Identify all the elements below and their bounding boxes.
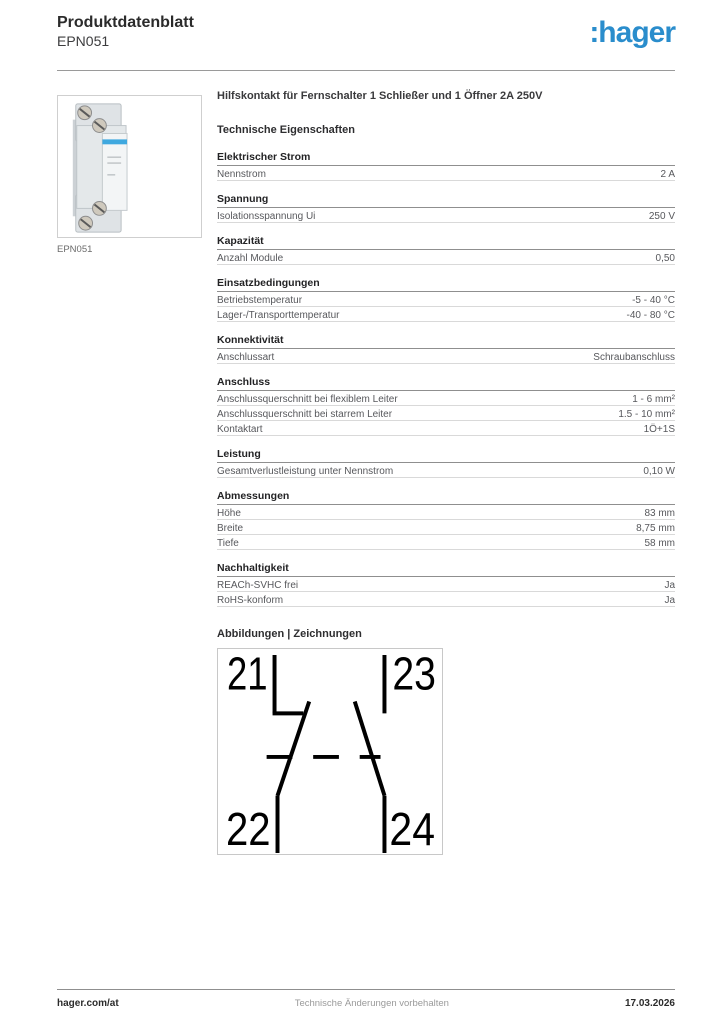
- spec-row-label: Nennstrom: [217, 169, 266, 180]
- product-photo-frame: [57, 95, 202, 238]
- spec-section: EinsatzbedingungenBetriebstemperatur-5 -…: [217, 277, 675, 322]
- spec-row-label: Lager-/Transporttemperatur: [217, 310, 339, 321]
- product-photo: [58, 96, 201, 237]
- spec-row-label: Anschlussquerschnitt bei flexiblem Leite…: [217, 394, 398, 405]
- spec-row-label: Gesamtverlustleistung unter Nennstrom: [217, 466, 393, 477]
- product-image-column: EPN051: [57, 95, 202, 255]
- spec-row-label: Anzahl Module: [217, 253, 283, 264]
- spec-section-title: Anschluss: [217, 376, 675, 391]
- spec-row-label: Betriebstemperatur: [217, 295, 302, 306]
- spec-row-value: 0,10 W: [643, 466, 675, 477]
- spec-section-title: Elektrischer Strom: [217, 151, 675, 166]
- spec-sections: Elektrischer StromNennstrom2 ASpannungIs…: [217, 151, 675, 607]
- spec-row-label: Isolationsspannung Ui: [217, 211, 315, 222]
- footer-date: 17.03.2026: [625, 998, 675, 1009]
- blue-stripe: [102, 139, 127, 144]
- header-divider: [57, 70, 675, 71]
- header-titles: Produktdatenblatt EPN051: [57, 14, 194, 51]
- spec-row: Anzahl Module0,50: [217, 250, 675, 265]
- page-footer: hager.com/at Technische Änderungen vorbe…: [57, 989, 675, 1009]
- tech-properties-heading: Technische Eigenschaften: [217, 124, 675, 136]
- terminal-label-24: 24: [389, 803, 435, 854]
- spec-row-label: Anschlussart: [217, 352, 274, 363]
- spec-row-value: 1Ö+1S: [644, 424, 675, 435]
- footer-website-link[interactable]: hager.com/at: [57, 998, 119, 1009]
- footer-notice: Technische Änderungen vorbehalten: [295, 998, 449, 1009]
- spec-row-value: 58 mm: [644, 538, 675, 549]
- spec-row-label: Höhe: [217, 508, 241, 519]
- spec-section-title: Leistung: [217, 448, 675, 463]
- wiring-diagram-frame: 21 23 22 24: [217, 648, 443, 855]
- spec-row-value: 2 A: [661, 169, 675, 180]
- spec-row-label: Breite: [217, 523, 243, 534]
- figures-heading: Abbildungen | Zeichnungen: [217, 628, 675, 640]
- spec-row-label: Kontaktart: [217, 424, 263, 435]
- contact-schematic: 21 23 22 24: [218, 649, 442, 854]
- spec-section: KonnektivitätAnschlussartSchraubanschlus…: [217, 334, 675, 364]
- spec-section-title: Abmessungen: [217, 490, 675, 505]
- spec-row-value: 1.5 - 10 mm²: [618, 409, 675, 420]
- spec-row: Anschlussquerschnitt bei starrem Leiter1…: [217, 406, 675, 421]
- terminal-label-22: 22: [226, 803, 271, 854]
- spec-section-title: Spannung: [217, 193, 675, 208]
- spec-row: Isolationsspannung Ui250 V: [217, 208, 675, 223]
- spec-row: REACh-SVHC freiJa: [217, 577, 675, 592]
- spec-row-value: 83 mm: [644, 508, 675, 519]
- spec-row: Lager-/Transporttemperatur-40 - 80 °C: [217, 307, 675, 322]
- terminal-label-23: 23: [392, 649, 436, 700]
- hager-logo: :hager: [589, 18, 675, 48]
- spec-row-label: Tiefe: [217, 538, 239, 549]
- spec-row-value: -5 - 40 °C: [632, 295, 675, 306]
- spec-row: Höhe83 mm: [217, 505, 675, 520]
- spec-row-value: -40 - 80 °C: [627, 310, 675, 321]
- spec-row-value: 1 - 6 mm²: [632, 394, 675, 405]
- spec-row-value: Ja: [664, 595, 675, 606]
- spec-row-label: REACh-SVHC frei: [217, 580, 298, 591]
- spec-row: Anschlussquerschnitt bei flexiblem Leite…: [217, 391, 675, 406]
- page-header: Produktdatenblatt EPN051 :hager: [57, 14, 675, 51]
- spec-row-label: Anschlussquerschnitt bei starrem Leiter: [217, 409, 392, 420]
- spec-section-title: Nachhaltigkeit: [217, 562, 675, 577]
- product-photo-caption: EPN051: [57, 244, 202, 255]
- spec-section-title: Konnektivität: [217, 334, 675, 349]
- spec-section-title: Kapazität: [217, 235, 675, 250]
- spec-row: Kontaktart1Ö+1S: [217, 421, 675, 436]
- spec-row-label: RoHS-konform: [217, 595, 283, 606]
- spec-section: Elektrischer StromNennstrom2 A: [217, 151, 675, 181]
- spec-row-value: Ja: [664, 580, 675, 591]
- spec-row: Tiefe58 mm: [217, 535, 675, 550]
- spec-row-value: Schraubanschluss: [593, 352, 675, 363]
- document-type: Produktdatenblatt: [57, 14, 194, 32]
- spec-section: AbmessungenHöhe83 mmBreite8,75 mmTiefe58…: [217, 490, 675, 550]
- spec-column: Hilfskontakt für Fernschalter 1 Schließe…: [217, 90, 675, 855]
- spec-section: KapazitätAnzahl Module0,50: [217, 235, 675, 265]
- spec-section: NachhaltigkeitREACh-SVHC freiJaRoHS-konf…: [217, 562, 675, 607]
- spec-section: SpannungIsolationsspannung Ui250 V: [217, 193, 675, 223]
- spec-section: LeistungGesamtverlustleistung unter Nenn…: [217, 448, 675, 478]
- datasheet-page: Produktdatenblatt EPN051 :hager: [0, 0, 724, 1024]
- spec-row: Breite8,75 mm: [217, 520, 675, 535]
- spec-row-value: 8,75 mm: [636, 523, 675, 534]
- spec-section-title: Einsatzbedingungen: [217, 277, 675, 292]
- spec-row-value: 0,50: [656, 253, 675, 264]
- spec-section: AnschlussAnschlussquerschnitt bei flexib…: [217, 376, 675, 436]
- terminal-label-21: 21: [227, 649, 268, 700]
- product-reference: EPN051: [57, 32, 194, 50]
- spec-row: Gesamtverlustleistung unter Nennstrom0,1…: [217, 463, 675, 478]
- spec-row-value: 250 V: [649, 211, 675, 222]
- spec-row: AnschlussartSchraubanschluss: [217, 349, 675, 364]
- product-title: Hilfskontakt für Fernschalter 1 Schließe…: [217, 90, 675, 102]
- spec-row: RoHS-konformJa: [217, 592, 675, 607]
- spec-row: Nennstrom2 A: [217, 166, 675, 181]
- spec-row: Betriebstemperatur-5 - 40 °C: [217, 292, 675, 307]
